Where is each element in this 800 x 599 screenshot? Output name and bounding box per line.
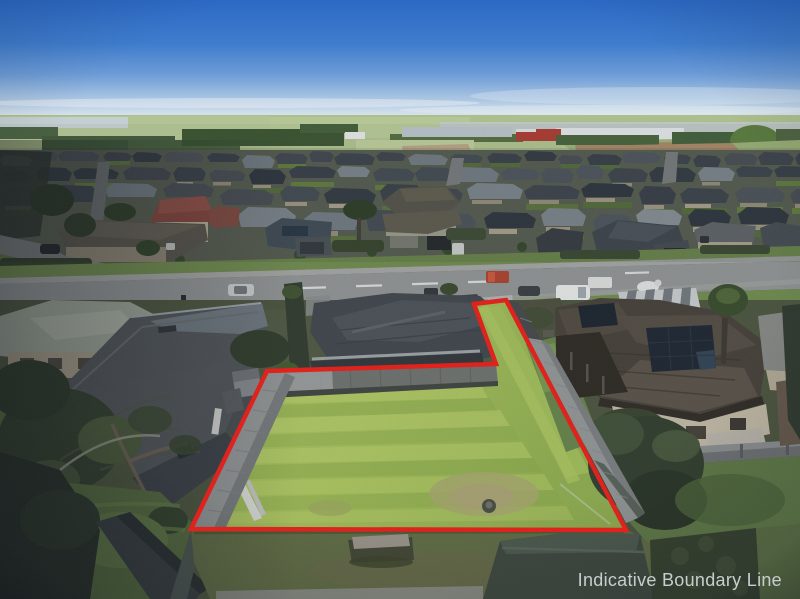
svg-text:Indicative Boundary Line: Indicative Boundary Line [578, 570, 782, 590]
